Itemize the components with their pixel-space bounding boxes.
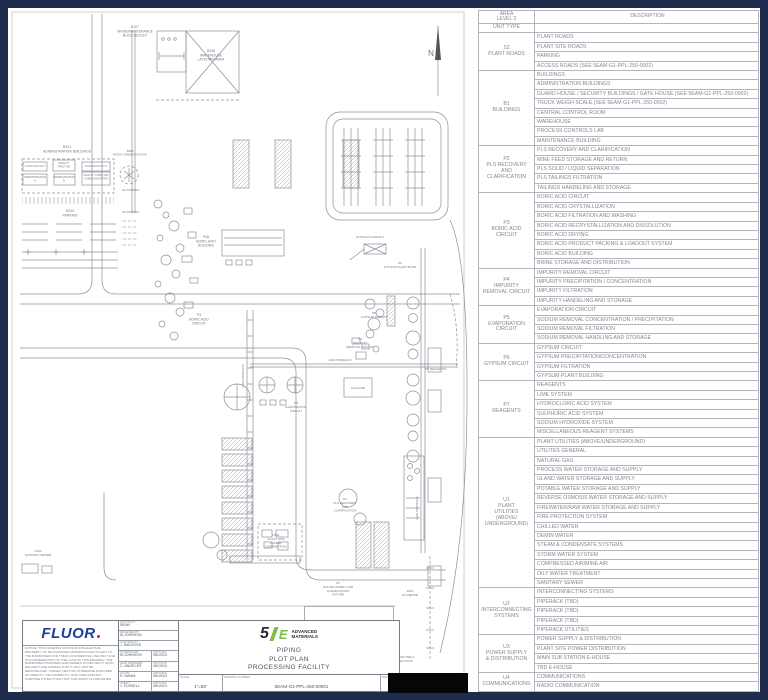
description-cell: IMPURITY REMOVAL CIRCUIT	[535, 268, 759, 277]
scale-label: SCALE	[180, 675, 189, 679]
drawing-number-label: DRAWING NUMBER	[224, 675, 250, 679]
description-cell: OILY WATER TREATMENT	[535, 569, 759, 578]
description-cell: GUARD HOUSE / SECURITY BUILDINGS / GATE …	[535, 89, 759, 98]
plan-label: E-HOUSE	[351, 386, 365, 390]
plan-label: P6GYPSUM CIRCUIT	[361, 311, 387, 319]
description-cell: GYPSUM FILTRATION	[535, 362, 759, 371]
description-cell: SODIUM REMOVAL CONCENTRATION / PRECIPITA…	[535, 315, 759, 324]
description-cell: IMPURITY FILTRATION	[535, 287, 759, 296]
table-row: U1 PLANT UTILITIES (ABOVE/ UNDERGROUND)P…	[479, 437, 759, 446]
drawing-title-line3: PROCESSING FACILITY	[179, 664, 399, 673]
area-group-cell: P6 GYPSUM CIRCUIT	[479, 343, 535, 381]
description-cell: PARKING	[535, 52, 759, 61]
area-legend-panel: AREA LEVEL 2 DESCRIPTION UNIT TYPE S2 PL…	[472, 8, 760, 692]
fluor-logo: FLUOR	[23, 621, 118, 645]
description-cell: IMPURITY HANDELING AND STORAGE	[535, 296, 759, 305]
description-header: DESCRIPTION	[535, 11, 759, 24]
brand-e-glyph: E	[279, 628, 288, 641]
description-cell: SODIUM HYDROXIDE SYSTEM	[535, 419, 759, 428]
area-group-cell: S2 PLANT ROADS	[479, 33, 535, 71]
description-cell: TAILINGS HANDELING AND STORAGE	[535, 183, 759, 192]
signature-row: LEAD ENGINEERC. ANGELESAPP DATE08/19/24	[119, 662, 178, 672]
description-cell: PIPERACK (TBD)	[535, 597, 759, 606]
table-row: P2 PLS RECOVERY AND CLARIFICATIONPLS REC…	[479, 146, 759, 155]
plan-label: LUNCH FACILITY	[25, 164, 46, 168]
description-cell: BORIC ACID BUILDING	[535, 249, 759, 258]
description-cell: GYPSUM PLANT BUILDING	[535, 372, 759, 381]
title-block-main-column: 5 E ADVANCED MATERIALS PIPING PLOT PLAN …	[179, 621, 399, 691]
description-cell: SULPHURIC ACID SYSTEM	[535, 409, 759, 418]
brand-slash-icon	[269, 627, 278, 641]
description-cell: SODIUM REMOVAL FILTRATION	[535, 324, 759, 333]
description-cell: PLANT UTILITIES (ABOVE/UNDERGROUND)	[535, 437, 759, 446]
plan-label: EV PARKING	[123, 188, 140, 192]
plan-label: EV PARKING	[123, 210, 140, 214]
description-cell: PIPERACK UTILITIES	[535, 625, 759, 634]
description-cell: ACCESS ROADS (SEE 5EAM-G1-PPL-250-0002)	[535, 61, 759, 70]
description-cell: REAGENTS	[535, 381, 759, 390]
description-cell: SANITARY SEWER	[535, 578, 759, 587]
area-level-header: AREA LEVEL 2	[479, 11, 535, 24]
north-arrow-icon	[435, 26, 441, 60]
plan-label: B105RADIO COMMUNICATION	[113, 149, 147, 157]
description-cell: PLS SOLID / LIQUID SEPARATION	[535, 165, 759, 174]
plan-label: ADMINISTRATIONB	[53, 175, 75, 183]
scale-cell: SCALE 1"=80'	[179, 675, 223, 691]
plan-label: P6GYPSUM PLANT BLDG	[384, 261, 417, 269]
description-cell: BORIC ACID RECRYSTALLIZATION AND DISSOLU…	[535, 221, 759, 230]
plan-label: U203 PIPERACK	[328, 358, 351, 362]
scale-value: 1"=80'	[194, 684, 207, 691]
description-cell: POTABLE WATER STORAGE AND SUPPLY	[535, 484, 759, 493]
description-cell: COMMUNICATIONS	[535, 673, 759, 682]
description-cell: BORIC ACID FILTRATION AND WASHING	[535, 212, 759, 221]
signature-row: FLUORK. NAMMAPP DATE08/19/24	[119, 672, 178, 682]
description-cell: GLAND WATER STORAGE AND SUPPLY	[535, 475, 759, 484]
description-cell: CHILLED WATER	[535, 522, 759, 531]
description-cell: INTERCONNECTING SYSTEMS	[535, 588, 759, 597]
description-cell: WAREHOUSE	[535, 118, 759, 127]
plan-label: FACILITY FIRST AID/COMMUNICATIONS	[84, 173, 109, 181]
plan-label: B103PARKING	[62, 209, 77, 217]
description-cell: MAINTENANCE BUILDING	[535, 136, 759, 145]
description-cell: PLANT SITE POWER DISTRIBUTION	[535, 644, 759, 653]
table-row: U4 COMMUNICATIONSCOMMUNICATIONS	[479, 673, 759, 682]
plan-label: B107WHSE/MAINTENANCEBLDG 183'x110'	[117, 25, 154, 38]
plan-label: FACILITYFIRST AID	[58, 161, 70, 169]
description-cell: FIREWATER/RAW WATER STORAGE AND SUPPLY	[535, 503, 759, 512]
description-cell: PLANT SITE ROADS	[535, 42, 759, 51]
rev-label: REV	[382, 675, 388, 679]
screenshot-root: B107WHSE/MAINTENANCEBLDG 183'x110'B108WA…	[0, 0, 768, 700]
plan-label: P5EVAPORATIONCIRCUIT	[285, 401, 306, 413]
drawing-number-value: 5EAM-G1-PPL-250-00001	[275, 684, 329, 691]
description-cell: MAIN SUB STATION E-HOUSE	[535, 654, 759, 663]
description-cell: STEAM & CONDENSATE SYSTEMS	[535, 541, 759, 550]
plan-label: U201 PIPERACK	[415, 496, 419, 519]
plan-label: CHANGE FACILITY	[84, 164, 107, 168]
description-cell: CENTRAL CONTROL ROOM	[535, 108, 759, 117]
brand-name: ADVANCED MATERIALS	[292, 629, 318, 640]
number-row: SCALE 1"=80' DRAWING NUMBER 5EAM-G1-PPL-…	[179, 674, 399, 691]
description-cell: PIPERACK (TBD)	[535, 616, 759, 625]
description-cell: PIPERACK (TBD)	[535, 607, 759, 616]
5e-advanced-materials-logo: 5 E ADVANCED MATERIALS	[179, 621, 399, 647]
area-group-cell: U3 POWER SUPPLY & DISTRIBUTION	[479, 635, 535, 673]
drawing-number-cell: DRAWING NUMBER 5EAM-G1-PPL-250-00001	[223, 675, 381, 691]
area-group-cell: P2 PLS RECOVERY AND CLARIFICATION	[479, 146, 535, 193]
signature-row: CONTRACT5EAM	[119, 621, 178, 631]
plan-label: U110SANITARY SEWER	[25, 549, 52, 557]
plan-label: B108WAREHOUSELAYDOWN AREA	[198, 49, 226, 62]
signature-row: CHECKED BYJ. WALDYKE	[119, 641, 178, 651]
fluor-logo-text: FLUOR	[41, 625, 95, 642]
brand-5-glyph: 5	[260, 626, 269, 642]
drawing-title: PIPING PLOT PLAN PROCESSING FACILITY	[179, 647, 399, 674]
plan-label: U202 PIPERACK	[241, 364, 245, 387]
table-row: P7 REAGENTSREAGENTS	[479, 381, 759, 390]
table-header-row: AREA LEVEL 2 DESCRIPTION	[479, 11, 759, 24]
table-header-row2: UNIT TYPE	[479, 24, 759, 33]
sig-rows: CONTRACT5EAMDESIGNED BYM.JOHNSONCHECKED …	[119, 621, 179, 691]
table-row: B1 BUILDINGSBUILDINGS	[479, 71, 759, 80]
drawing-sheet: B107WHSE/MAINTENANCEBLDG 183'x110'B108WA…	[8, 8, 472, 692]
description-cell: GYPSUM PRECIPITATION/CONCENTRATION	[535, 353, 759, 362]
area-group-cell: P7 REAGENTS	[479, 381, 535, 437]
plan-label: B101ADMINISTRATION BUILDINGS	[43, 145, 92, 153]
sheet-border	[12, 12, 464, 688]
title-block-logo-column: FLUOR NOTICE: THIS DRAWING CONTAINS INTE…	[23, 621, 119, 691]
plan-label: P4IMPURITYREMOVAL CIRCUIT	[346, 337, 374, 349]
plan-label: ADMINISTRATIONA	[24, 175, 46, 183]
description-cell: POWER SUPPLY & DISTRIBUTION	[535, 635, 759, 644]
description-cell: RADIO COMMUNICATION	[535, 682, 759, 691]
signature-row: DESIGNED BYM.JOHNSON	[119, 631, 178, 641]
description-cell: EVAPORATION CIRCUIT	[535, 306, 759, 315]
description-cell: STORM WATER SYSTEM	[535, 550, 759, 559]
plot-plan-linework	[20, 14, 467, 660]
signature-row: SUPERVISORM.JOHNSONAPP DATE08/19/24	[119, 651, 178, 661]
description-cell: BORIC ACID CRYSTALLIZATION	[535, 202, 759, 211]
description-cell: MINE FEED STORAGE AND RETURN	[535, 155, 759, 164]
title-block: FLUOR NOTICE: THIS DRAWING CONTAINS INTE…	[22, 620, 400, 692]
plan-label: P2PLS RECOVERY ANDCLARIFICATIONFUTURE	[323, 581, 354, 597]
plan-label: GYPSUM LOADOUT	[356, 235, 385, 239]
table-row: U3 POWER SUPPLY & DISTRIBUTIONPOWER SUPP…	[479, 635, 759, 644]
description-cell: PLS TAILINGS FILTRATION	[535, 174, 759, 183]
unit-type-header: UNIT TYPE	[479, 24, 535, 33]
plot-plan-svg: B107WHSE/MAINTENANCEBLDG 183'x110'B108WA…	[8, 8, 472, 692]
plan-label: 2021NO METER	[402, 589, 419, 597]
description-cell: PROCESS CONTROLS LAB	[535, 127, 759, 136]
area-group-cell: P4 IMPURITY REMOVAL CIRCUIT	[479, 268, 535, 306]
plan-label: N	[428, 49, 434, 58]
description-cell: TBD E-HOUSE	[535, 663, 759, 672]
signature-row: CLIENTJ. FUSSELLAPP DATE08/19/24	[119, 682, 178, 691]
description-cell: DEMIN WATER	[535, 531, 759, 540]
table-row: U2 INTERCONNECTING SYSTEMSINTERCONNECTIN…	[479, 588, 759, 597]
plan-label: U301PLANT SITEPOWERDISTRIBUTION	[265, 533, 286, 549]
drawing-title-line2: PLOT PLAN	[179, 656, 399, 665]
area-group-cell: P3 BORIC ACID CIRCUIT	[479, 193, 535, 268]
area-group-cell: U4 COMMUNICATIONS	[479, 673, 535, 692]
description-cell: ADMINISTRATION BUILDINGS	[535, 80, 759, 89]
table-row: P4 IMPURITY REMOVAL CIRCUITIMPURITY REMO…	[479, 268, 759, 277]
area-group-cell: U1 PLANT UTILITIES (ABOVE/ UNDERGROUND)	[479, 437, 535, 588]
area-group-cell: U2 INTERCONNECTING SYSTEMS	[479, 588, 535, 635]
drawing-title-line1: PIPING	[179, 647, 399, 656]
description-cell: BORIC ACID DRYING	[535, 230, 759, 239]
plan-label: P3ABORIC ACIDBUILDING	[196, 235, 216, 248]
description-cell: IMPURITY PRECIPITATION / CONCENTRATION	[535, 277, 759, 286]
description-cell: FIRE PROTECTION SYSTEM	[535, 513, 759, 522]
table-row: P5 EVAPORATION CIRCUITEVAPORATION CIRCUI…	[479, 306, 759, 315]
plan-label: P2PLS RECOVERYANDCLARIFICATION	[333, 497, 356, 513]
description-cell: SODIUM REMOVAL HANDLING AND STORAGE	[535, 334, 759, 343]
area-legend-table: AREA LEVEL 2 DESCRIPTION UNIT TYPE S2 PL…	[478, 10, 759, 692]
description-cell: NATURAL GAS	[535, 456, 759, 465]
table-row: P6 GYPSUM CIRCUITGYPSUM CIRCUIT	[479, 343, 759, 352]
description-cell: REVERSE OSMOSIS WATER STORAGE AND SUPPLY	[535, 494, 759, 503]
fluor-logo-dot-icon	[97, 635, 100, 638]
description-cell: GYPSUM CIRCUIT	[535, 343, 759, 352]
description-cell: PLS RECOVERY AND CLARIFICATION	[535, 146, 759, 155]
plan-label: P3BORIC ACIDCIRCUIT	[189, 313, 209, 326]
description-cell: LIME SYSTEM	[535, 390, 759, 399]
description-cell: BORIC ACID CIRCUIT	[535, 193, 759, 202]
description-cell: COMPRESSED AIR/MINE AIR	[535, 560, 759, 569]
description-cell: BRINE STORAGE AND DISTRIBUTION	[535, 259, 759, 268]
area-table-body: AREA LEVEL 2 DESCRIPTION UNIT TYPE S2 PL…	[479, 11, 759, 692]
notice-text: NOTICE: THIS DRAWING CONTAINS INTELLECTU…	[23, 645, 118, 691]
redaction-box	[388, 673, 468, 693]
table-row: S2 PLANT ROADSPLANT ROADS	[479, 33, 759, 42]
description-cell: BORIC ACID PRODUCT PACKING & LOADOUT SYS…	[535, 240, 759, 249]
description-cell: TRUCK WEIGH SCALE (SEE 5EAM-G1-PPL-250-0…	[535, 99, 759, 108]
area-group-cell: P5 EVAPORATION CIRCUIT	[479, 306, 535, 344]
empty-header-cell	[535, 24, 759, 33]
table-row: P3 BORIC ACID CIRCUITBORIC ACID CIRCUIT	[479, 193, 759, 202]
brand-name-line2: MATERIALS	[292, 634, 318, 639]
description-cell: HYDROCLORIC ACID SYSTEM	[535, 400, 759, 409]
description-cell: BUILDINGS	[535, 71, 759, 80]
plan-label: P7 REAGENTS	[425, 367, 446, 371]
description-cell: PLANT ROADS	[535, 33, 759, 42]
area-group-cell: B1 BUILDINGS	[479, 71, 535, 146]
description-cell: PROCESS WATER STORAGE AND SUPPLY	[535, 466, 759, 475]
description-cell: MISCELLANEOUS REAGENT SYSTEMS	[535, 428, 759, 437]
description-cell: UTILITES GENERAL	[535, 447, 759, 456]
